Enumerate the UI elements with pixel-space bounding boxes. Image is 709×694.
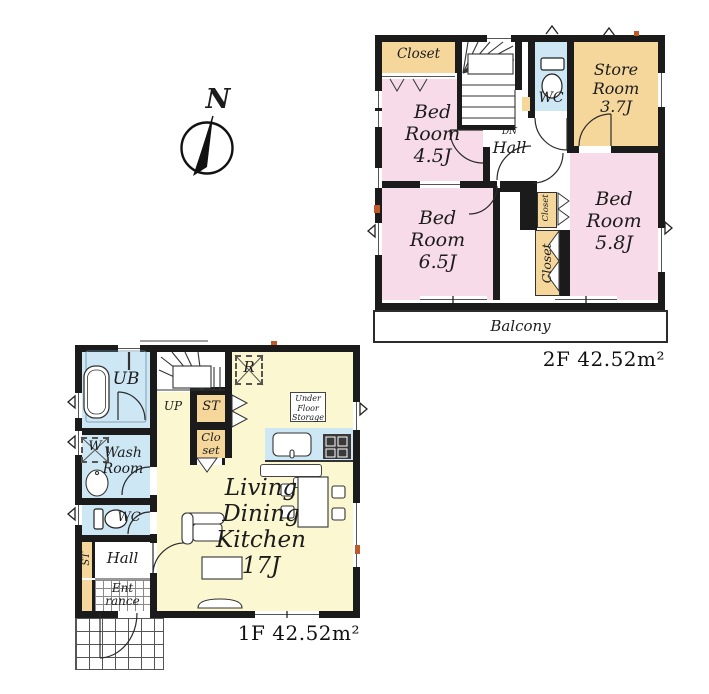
- balcony: Balcony: [373, 310, 668, 343]
- window-1f-left-1: [75, 393, 82, 418]
- under-floor-storage-box: [290, 392, 326, 422]
- alarm-mark-2: [374, 205, 380, 213]
- room-2f-closet-small: [537, 192, 557, 228]
- door-gap-2f-bed45: [483, 130, 490, 147]
- door-gap-1f-wc: [150, 512, 157, 534]
- wall-2f-store-left: [567, 42, 574, 153]
- wall-2f-top: [375, 35, 665, 42]
- room-2f-stairs: [457, 42, 515, 130]
- wall-1f-left: [75, 345, 82, 618]
- window-2f-balcony-door-1: [420, 296, 487, 303]
- wall-2f-store-bottom-a: [567, 146, 579, 153]
- shelf-2f-wc-side: [522, 97, 530, 111]
- room-1f-closet: [197, 430, 225, 458]
- room-2f-closet-top: [382, 42, 455, 73]
- room-2f-wc: [535, 42, 567, 111]
- window-2f-left-2: [375, 111, 382, 127]
- kitchen-counter-edge: [265, 460, 353, 462]
- entrance-porch: [75, 618, 164, 670]
- floor-plan-1f: UB UP ST R Under Floor Storage W Wash Ro…: [75, 345, 360, 618]
- door-gap-1f-wash: [150, 467, 157, 495]
- door-gap-1f-front: [118, 611, 150, 618]
- window-2f-top-1: [487, 35, 511, 42]
- label-2f-hall: Hall: [482, 139, 537, 158]
- wall-1f-st-sliver: [92, 542, 95, 578]
- wall-2f-bed45-65-a: [382, 181, 420, 188]
- washer-space: [81, 437, 109, 463]
- refrigerator-space: [235, 355, 263, 385]
- kitchen-island-2: [293, 477, 323, 488]
- wall-2f-bottom: [375, 303, 665, 310]
- room-1f-entrance: [95, 580, 150, 611]
- wall-2f-store-bottom-b: [611, 146, 658, 153]
- strip-1f-shoe: [82, 580, 92, 611]
- wall-2f-bed45-65-b: [460, 181, 497, 188]
- window-2f-bed45-slide: [420, 181, 460, 188]
- window-1f-top: [118, 345, 140, 352]
- door-gap-1f-closet: [197, 458, 222, 465]
- room-1f-st: [197, 395, 225, 422]
- window-1f-left-3: [75, 505, 82, 525]
- window-1f-bottom: [255, 611, 319, 618]
- window-2f-balcony-door-2: [555, 296, 617, 303]
- window-2f-closet-slide: [382, 73, 455, 79]
- label-1f-area: 1F 42.52m²: [220, 621, 360, 645]
- floor-plan-2f: Closet Bed Room 4.5J Store Room 3.7J WC …: [375, 35, 665, 310]
- room-2f-closet-large: [535, 230, 560, 296]
- wall-1f-wash-wc: [82, 498, 150, 505]
- window-2f-left-4: [375, 223, 382, 255]
- window-1f-right-1: [353, 402, 360, 430]
- wall-1f-stairs-right: [225, 352, 232, 458]
- floor-plan-page: N: [0, 0, 709, 694]
- alarm-mark-3: [271, 341, 277, 345]
- window-2f-left-1: [375, 91, 382, 108]
- label-balcony: Balcony: [490, 318, 550, 335]
- compass-north-label: N: [200, 84, 236, 115]
- wall-1f-st-left: [190, 395, 197, 422]
- door-gap-2f-store: [579, 146, 611, 153]
- door-gap-2f-wc: [535, 111, 567, 118]
- alarm-mark-1: [634, 31, 639, 36]
- door-strip-closet-small: [557, 192, 570, 228]
- kitchen-counter: [265, 428, 353, 460]
- door-gap-1f-hall-ldk: [150, 543, 157, 573]
- room-2f-bedroom-65: [382, 188, 493, 300]
- window-2f-left-3: [375, 168, 382, 188]
- compass-icon: [182, 116, 233, 176]
- wall-2f-closet-col-mid: [520, 192, 537, 230]
- wall-2f-closet-col-top: [500, 181, 537, 192]
- room-2f-bedroom-58: [570, 153, 658, 300]
- wall-1f-st-top: [190, 387, 225, 395]
- entrance-step-line: [95, 578, 150, 580]
- wall-1f-ub-wash: [82, 428, 150, 435]
- window-2f-right-1: [658, 73, 665, 107]
- alarm-mark-4: [355, 545, 360, 554]
- wall-1f-closet-left: [190, 430, 197, 458]
- kitchen-island: [260, 464, 322, 477]
- wall-1f-st-closet: [190, 422, 225, 430]
- window-2f-right-2: [658, 228, 665, 272]
- eave-line: [140, 340, 208, 342]
- wall-1f-shoe-sliver: [92, 580, 95, 611]
- room-2f-store: [574, 42, 658, 146]
- wall-2f-stairs-right: [515, 42, 522, 90]
- wall-2f-bed65-right: [493, 188, 500, 300]
- wall-1f-right: [353, 345, 360, 618]
- room-1f-stairs: [157, 352, 225, 392]
- wall-2f-closet-col-right: [560, 230, 570, 296]
- label-2f-area: 2F 42.52m²: [480, 347, 665, 371]
- room-1f-ub: [82, 352, 150, 428]
- wall-1f-wc-hall: [82, 535, 150, 542]
- strip-1f-st-side: [82, 542, 92, 578]
- room-1f-hall: [95, 542, 150, 578]
- window-1f-right-2: [353, 503, 360, 567]
- door-strip-closet-large: [522, 230, 535, 296]
- room-1f-wc: [82, 505, 150, 535]
